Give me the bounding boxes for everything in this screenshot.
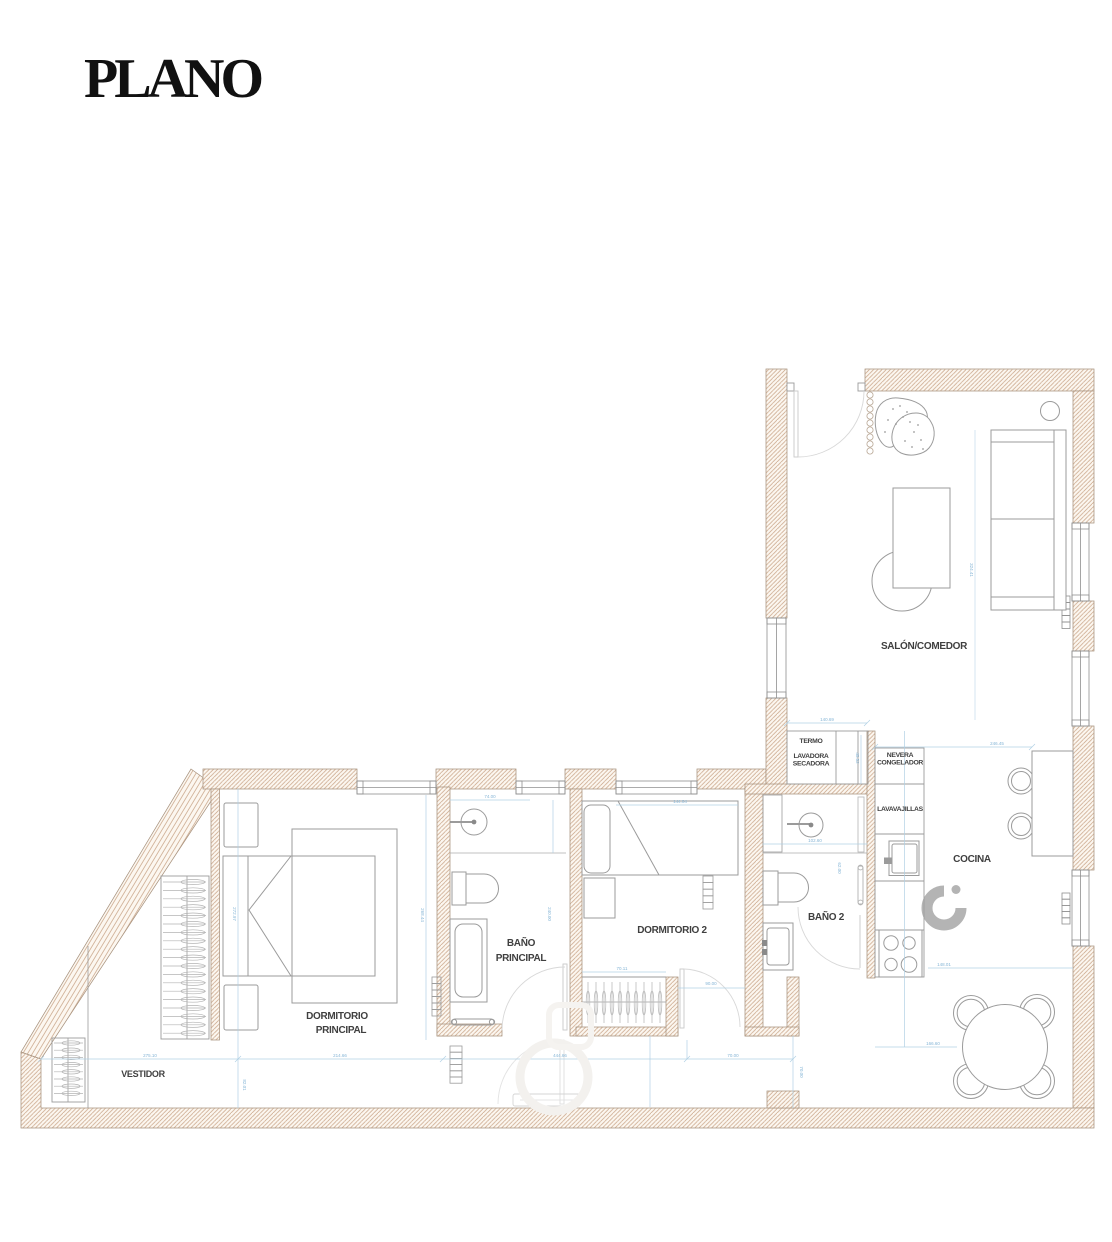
svg-text:LAVAVAJILLAS: LAVAVAJILLAS [877,806,924,813]
svg-text:246.45: 246.45 [990,741,1004,746]
svg-text:70.11: 70.11 [617,966,628,971]
svg-text:COCINA: COCINA [953,854,991,865]
svg-text:CONGELADOR: CONGELADOR [877,760,923,767]
svg-text:214.66: 214.66 [333,1053,347,1058]
svg-text:VESTIDOR: VESTIDOR [121,1069,165,1079]
svg-text:82.01: 82.01 [242,1079,247,1091]
svg-text:NEVERA: NEVERA [887,752,914,759]
svg-text:70.00: 70.00 [799,1066,804,1078]
svg-text:268.44: 268.44 [420,908,425,922]
svg-text:BAÑO 2: BAÑO 2 [808,910,845,923]
svg-text:LAVADORA: LAVADORA [793,753,828,760]
svg-text:144.04: 144.04 [673,799,687,804]
svg-text:148.01: 148.01 [937,962,951,967]
svg-text:70.00: 70.00 [727,1053,739,1058]
svg-text:444.66: 444.66 [553,1053,567,1058]
svg-text:SECADORA: SECADORA [793,761,830,768]
svg-text:PRINCIPAL: PRINCIPAL [316,1025,367,1036]
svg-text:102.60: 102.60 [808,838,822,843]
svg-text:275.10: 275.10 [143,1053,157,1058]
svg-text:45.52: 45.52 [855,752,860,764]
svg-text:DORMITORIO: DORMITORIO [306,1011,368,1022]
svg-text:140.69: 140.69 [820,717,834,722]
svg-text:240.00: 240.00 [547,907,552,921]
svg-text:272.97: 272.97 [232,907,237,921]
svg-text:BAÑO: BAÑO [507,936,536,949]
svg-text:PRINCIPAL: PRINCIPAL [496,953,547,964]
svg-text:324.41: 324.41 [969,563,974,577]
svg-text:SALÓN/COMEDOR: SALÓN/COMEDOR [881,639,968,652]
svg-text:74.00: 74.00 [484,794,496,799]
svg-text:DORMITORIO 2: DORMITORIO 2 [637,925,707,936]
svg-text:166.60: 166.60 [926,1041,940,1046]
svg-text:90.00: 90.00 [705,981,717,986]
svg-text:62.00: 62.00 [837,862,842,874]
svg-text:TERMO: TERMO [799,738,822,745]
